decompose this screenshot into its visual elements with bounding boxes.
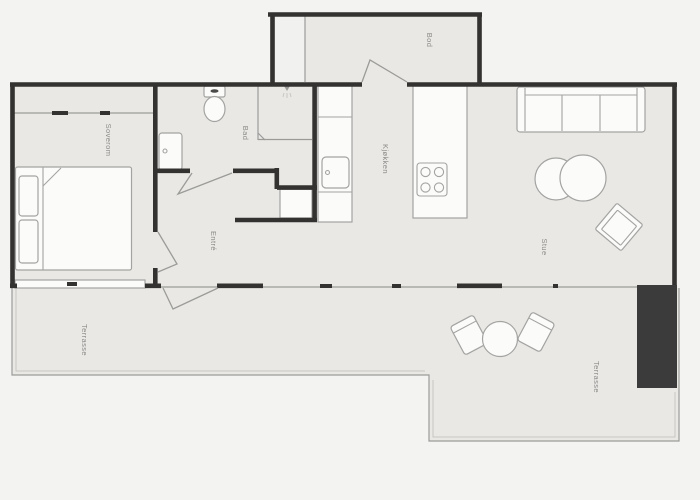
- hall-wardrobe: [280, 189, 312, 218]
- washbasin: [159, 133, 182, 170]
- terrace-floor: [12, 288, 679, 441]
- coffee-table-large: [560, 155, 606, 201]
- washbasin-body: [159, 133, 182, 170]
- pillow-2: [19, 220, 38, 263]
- toilet: [204, 86, 225, 122]
- kitchen-counter: [318, 85, 352, 222]
- bedroom-window: [15, 280, 145, 288]
- island-body: [413, 85, 467, 218]
- floor-plan-drawing: Soverom Bad Bod Entré Kjøkken Stue Terra…: [0, 0, 700, 500]
- bad-label: Bad: [241, 126, 250, 141]
- kitchen-island: [413, 85, 467, 218]
- terrasse-label-right: Terrasse: [592, 361, 601, 393]
- terrace-table: [483, 322, 518, 357]
- terrasse-label-left: Terrasse: [80, 324, 89, 356]
- stue-label: Stue: [540, 238, 549, 255]
- sofa-outline: [517, 87, 645, 132]
- entre-label: Entré: [209, 231, 218, 251]
- soverom-label: Soverom: [104, 124, 113, 157]
- bod-shelf-area: [275, 16, 305, 82]
- pillow-1: [19, 176, 38, 216]
- kjokken-label: Kjøkken: [381, 144, 390, 174]
- toilet-bowl: [204, 97, 225, 122]
- bed: [16, 167, 132, 270]
- bod-label: Bod: [425, 33, 434, 48]
- toilet-flush-button: [211, 89, 219, 93]
- sofa: [517, 87, 645, 132]
- floor-plan-page: Soverom Bad Bod Entré Kjøkken Stue Terra…: [0, 0, 700, 500]
- counter-run: [318, 85, 352, 222]
- terrace-solid-wall: [637, 285, 677, 388]
